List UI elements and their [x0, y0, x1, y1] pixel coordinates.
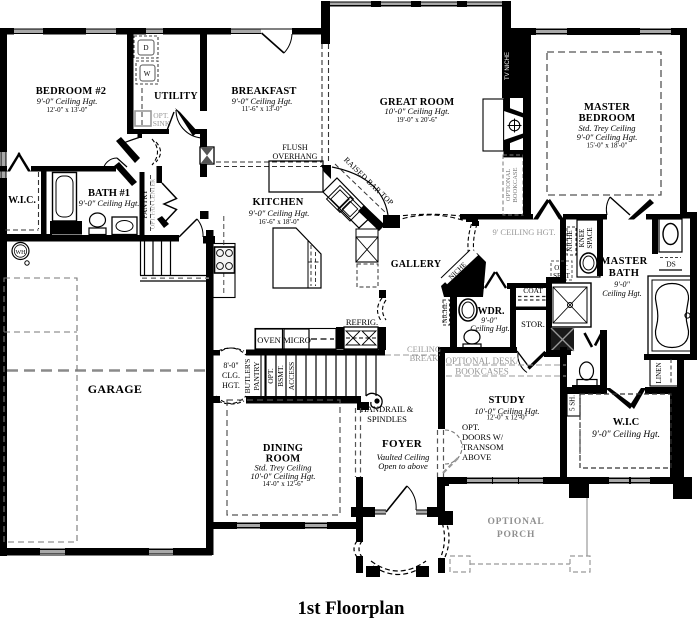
svg-text:8'-0": 8'-0": [223, 361, 238, 370]
svg-text:KITCHEN: KITCHEN: [253, 197, 304, 208]
svg-text:BUTLER'S: BUTLER'S: [243, 359, 252, 394]
svg-text:D: D: [143, 44, 148, 52]
svg-text:16'-6" x 18'-0": 16'-6" x 18'-0": [259, 218, 300, 226]
svg-text:OPT.: OPT.: [554, 264, 569, 272]
svg-text:MASTER: MASTER: [584, 102, 630, 113]
svg-text:REFRIG.: REFRIG.: [346, 317, 378, 327]
svg-text:NICHE: NICHE: [442, 303, 449, 323]
svg-text:ACCESS: ACCESS: [287, 362, 296, 390]
svg-text:11'-6" x 13'-0": 11'-6" x 13'-0": [242, 105, 283, 113]
svg-text:CLG.: CLG.: [222, 371, 240, 380]
svg-text:UTILITY: UTILITY: [154, 91, 198, 102]
svg-text:W.I.C: W.I.C: [613, 417, 639, 428]
svg-text:DINING: DINING: [263, 443, 303, 454]
svg-text:9'-0" Ceiling Hgt.: 9'-0" Ceiling Hgt.: [577, 132, 638, 142]
svg-text:TV NICHE: TV NICHE: [505, 52, 511, 80]
svg-text:19'-0" x 20'-6": 19'-0" x 20'-6": [397, 116, 438, 124]
svg-text:WH: WH: [16, 250, 27, 256]
svg-text:KNEE: KNEE: [578, 229, 586, 248]
svg-text:14'-0" x 12'-6": 14'-0" x 12'-6": [263, 480, 304, 488]
svg-text:9'-0" Ceiling Hgt.: 9'-0" Ceiling Hgt.: [37, 96, 98, 106]
svg-text:COAT: COAT: [523, 286, 543, 295]
svg-text:9'-0" Ceiling Hgt.: 9'-0" Ceiling Hgt.: [249, 208, 310, 218]
svg-text:OPTIONAL: OPTIONAL: [505, 169, 512, 202]
svg-text:Ceiling Hgt.: Ceiling Hgt.: [470, 324, 510, 333]
svg-text:W: W: [144, 70, 151, 78]
svg-text:PANTRY: PANTRY: [140, 189, 149, 218]
svg-text:MICRO: MICRO: [283, 335, 311, 345]
svg-text:LINEN: LINEN: [655, 363, 663, 384]
svg-text:9'-0" Ceiling Hgt.: 9'-0" Ceiling Hgt.: [592, 430, 660, 440]
svg-text:MASTER: MASTER: [600, 256, 647, 267]
svg-text:DS: DS: [666, 260, 676, 269]
svg-text:9'-0": 9'-0": [614, 280, 630, 289]
svg-text:GARAGE: GARAGE: [88, 382, 142, 396]
svg-text:9'-0" Ceiling Hgt.: 9'-0" Ceiling Hgt.: [79, 198, 140, 208]
svg-text:OPT.: OPT.: [266, 368, 275, 384]
svg-text:OVEN: OVEN: [257, 335, 281, 345]
svg-text:Open to above: Open to above: [378, 461, 428, 471]
svg-text:ABOVE: ABOVE: [462, 452, 491, 462]
svg-text:PANTRY: PANTRY: [252, 361, 261, 390]
svg-text:9' CEILING HGT.: 9' CEILING HGT.: [493, 227, 556, 237]
svg-text:GALLERY: GALLERY: [391, 259, 442, 270]
svg-text:BATH: BATH: [609, 268, 640, 279]
svg-text:OPTIONAL DESK/: OPTIONAL DESK/: [446, 356, 519, 366]
svg-text:OVERHANG: OVERHANG: [273, 152, 318, 161]
svg-text:5 SH.: 5 SH.: [569, 395, 577, 411]
svg-text:SPACE: SPACE: [586, 227, 594, 248]
svg-text:PORCH: PORCH: [497, 530, 535, 540]
svg-text:STOR.: STOR.: [521, 319, 545, 329]
svg-text:OPT. FAN CENTER: OPT. FAN CENTER: [151, 179, 157, 229]
svg-text:SPINDLES: SPINDLES: [367, 414, 407, 424]
svg-text:OPTIONAL: OPTIONAL: [487, 517, 544, 527]
svg-text:NICHE: NICHE: [566, 230, 574, 251]
svg-text:BSMT.: BSMT.: [276, 365, 285, 387]
svg-text:1st Floorplan: 1st Floorplan: [298, 598, 406, 619]
svg-text:FOYER: FOYER: [382, 438, 423, 450]
svg-text:OPT.: OPT.: [462, 422, 480, 432]
svg-text:FLUSH: FLUSH: [282, 143, 308, 152]
svg-text:W.I.C.: W.I.C.: [8, 195, 36, 206]
svg-text:DOORS W/: DOORS W/: [462, 432, 504, 442]
svg-text:10'-0" Ceiling Hgt.: 10'-0" Ceiling Hgt.: [384, 106, 449, 116]
svg-text:12'-0" x 12'-0": 12'-0" x 12'-0": [487, 414, 528, 422]
svg-text:12'-0" x 13'-0": 12'-0" x 13'-0": [47, 106, 88, 114]
svg-text:HANDRAIL &: HANDRAIL &: [361, 404, 414, 414]
svg-text:15'-0" x 18'-0": 15'-0" x 18'-0": [587, 142, 628, 150]
svg-text:TRANSOM: TRANSOM: [462, 442, 504, 452]
svg-text:HGT.: HGT.: [222, 381, 240, 390]
svg-text:Ceiling Hgt.: Ceiling Hgt.: [602, 289, 642, 298]
svg-text:BOOKCASE: BOOKCASE: [512, 167, 519, 202]
svg-text:STUDY: STUDY: [488, 395, 525, 406]
svg-text:BOOKCASES: BOOKCASES: [455, 367, 509, 377]
